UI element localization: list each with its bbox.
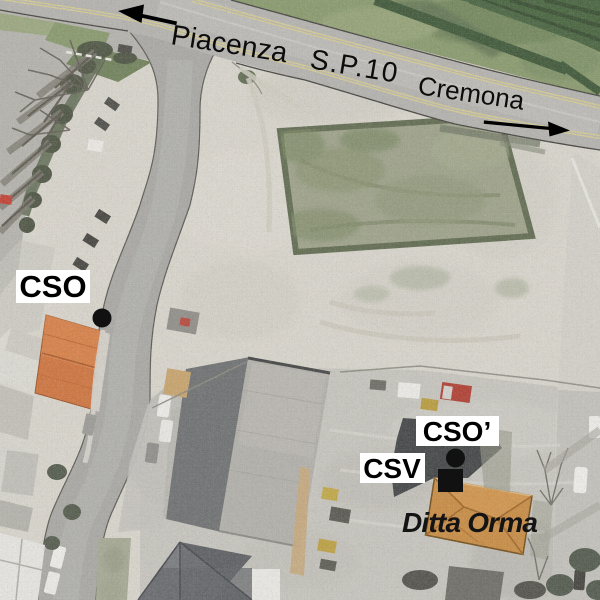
svg-text:CSO’: CSO’ [423, 416, 491, 447]
svg-text:CSO: CSO [19, 269, 86, 304]
svg-text:CSV: CSV [363, 453, 421, 484]
svg-text:Ditta Orma: Ditta Orma [402, 507, 537, 538]
